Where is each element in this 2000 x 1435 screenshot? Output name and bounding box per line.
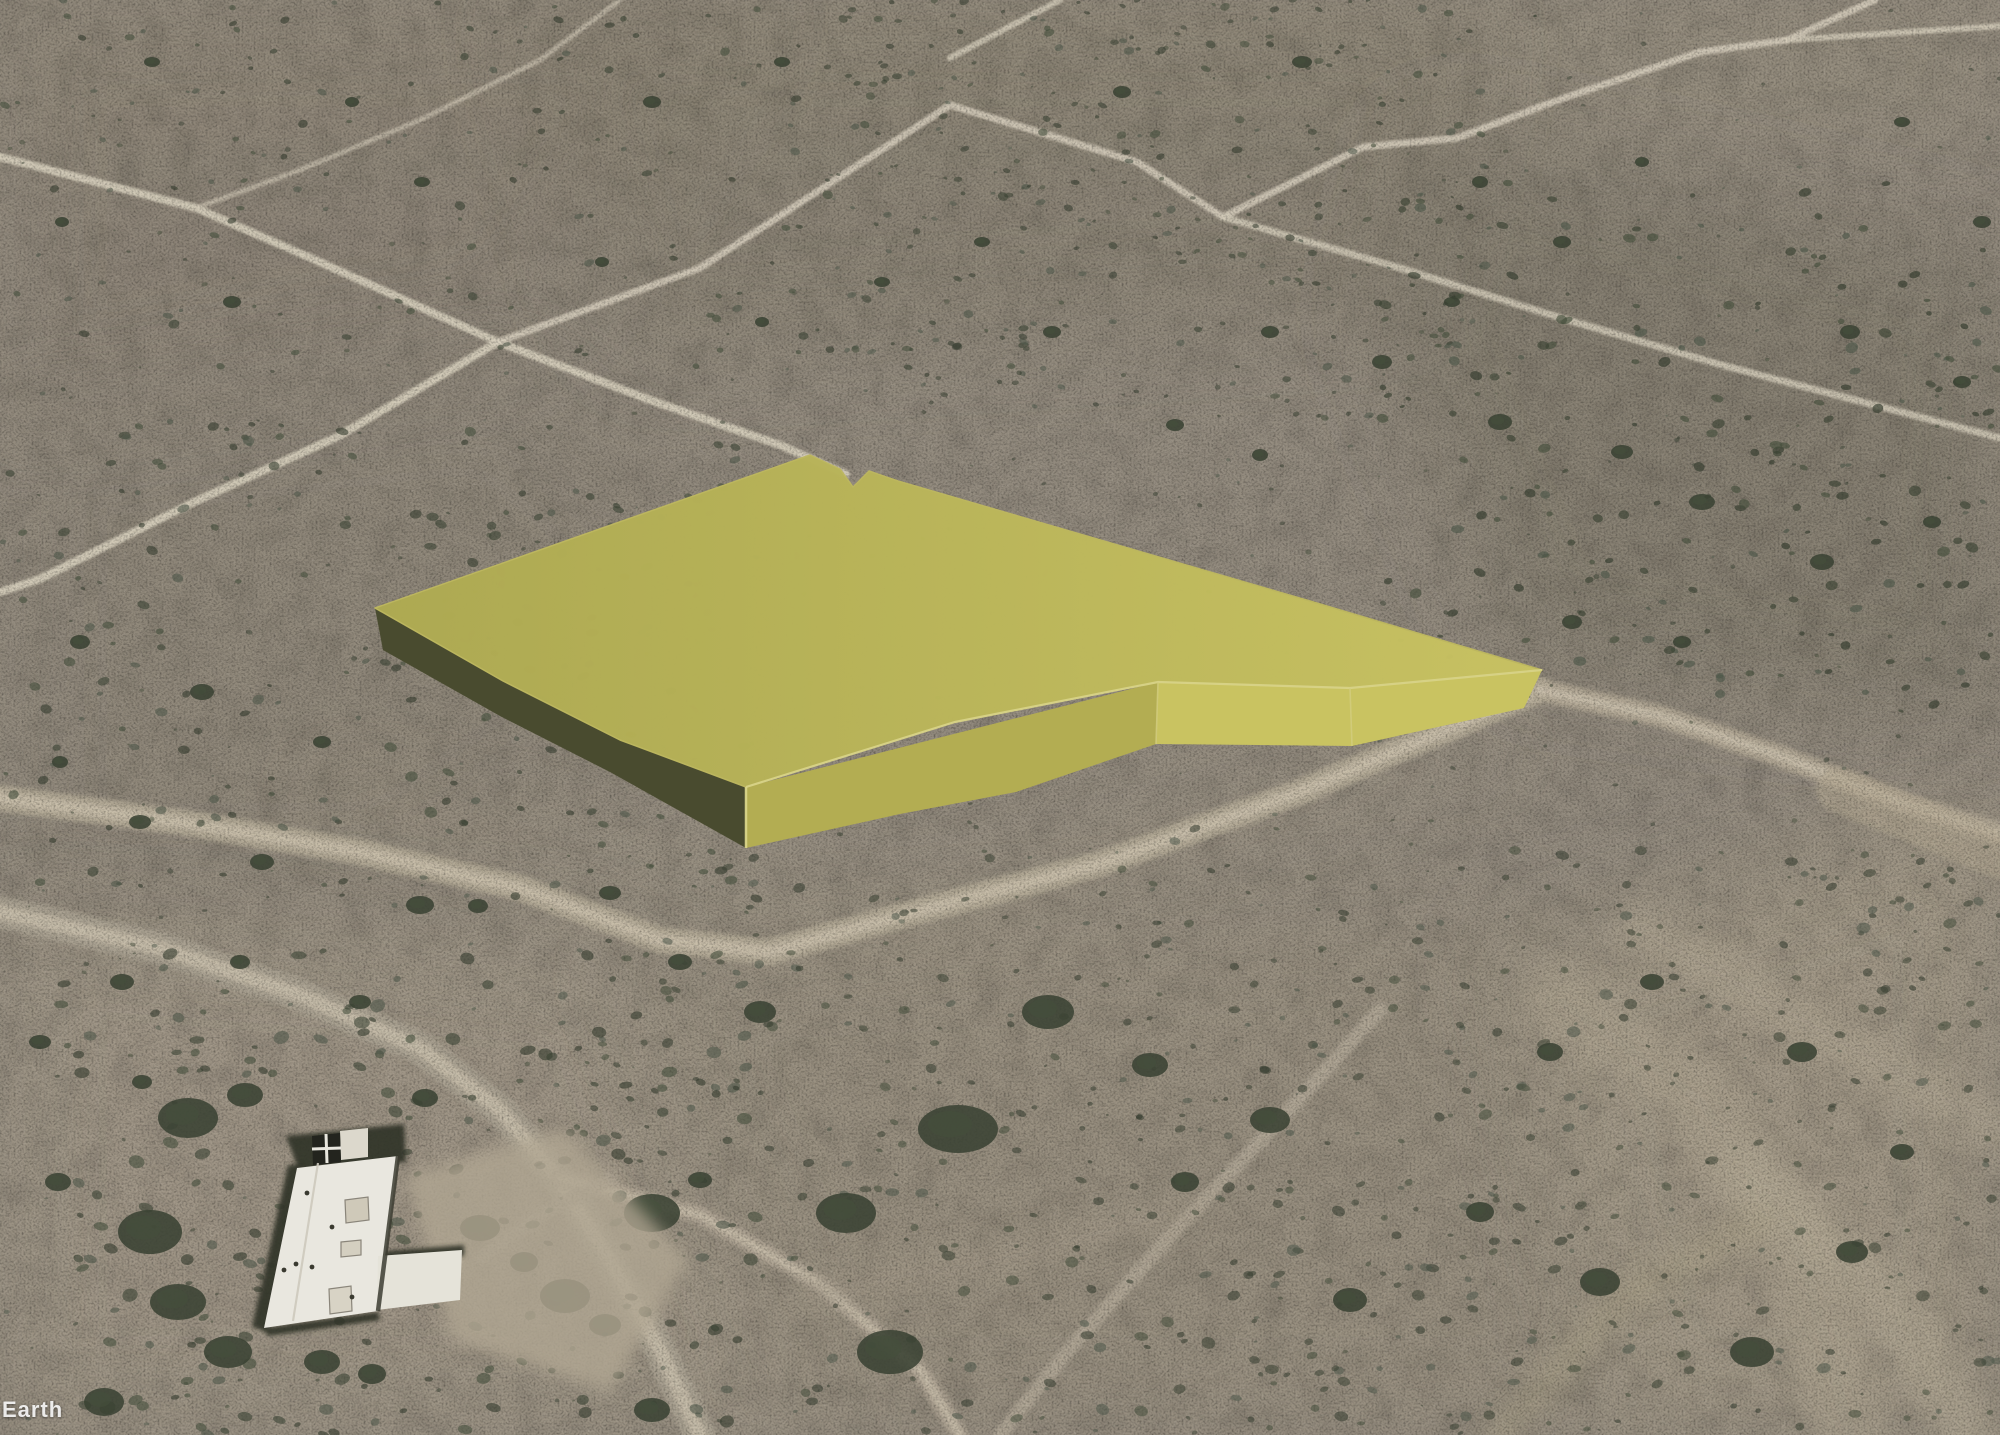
google-earth-view[interactable]: Earth	[0, 0, 2000, 1435]
roof-skylight	[329, 1286, 352, 1314]
roof-skylight	[345, 1197, 369, 1223]
building-roof-panel	[340, 1128, 368, 1160]
building-roof-wing	[377, 1250, 462, 1310]
roof-vent	[330, 1225, 335, 1230]
roof-vent	[305, 1191, 310, 1196]
roof-vent	[310, 1265, 315, 1270]
terrain-canvas	[0, 0, 2000, 1435]
roof-vent	[294, 1262, 299, 1267]
roof-vent	[282, 1268, 287, 1273]
roof-skylight	[341, 1240, 361, 1257]
roof-vent	[350, 1295, 355, 1300]
